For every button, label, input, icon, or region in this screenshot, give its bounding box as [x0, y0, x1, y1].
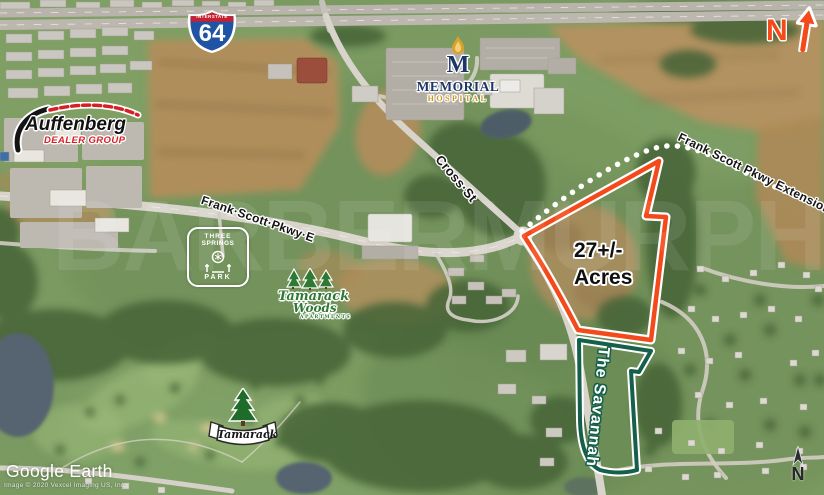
- memorial-name: MEMORIAL: [398, 79, 518, 95]
- memorial-hospital-logo: M MEMORIAL HOSPITAL: [398, 36, 518, 108]
- memorial-subtitle: HOSPITAL: [398, 94, 518, 103]
- tamarack-woods-line2: Woods: [293, 301, 337, 315]
- compass-needle-icon: [791, 446, 805, 466]
- interstate-number: 64: [187, 20, 237, 48]
- three-springs-park-logo: THREE SPRINGS PARK: [187, 227, 249, 287]
- auffenberg-logo: Auffenberg DEALER GROUP: [8, 102, 150, 158]
- brokerage-watermark: BARBERMURPHY: [52, 182, 792, 290]
- google-earth-compass-label: N: [786, 464, 810, 485]
- tamarack-golf-logo: Tamarack: [201, 388, 285, 448]
- acreage-line1: 27+/-: [574, 237, 632, 264]
- north-arrow: N: [764, 6, 820, 54]
- google-earth-compass: N: [786, 446, 810, 492]
- three-trees-icon: [284, 268, 336, 290]
- north-arrow-icon: [792, 6, 820, 52]
- acreage-line2: Acres: [574, 264, 632, 291]
- tamarack-golf-name: Tamarack: [217, 428, 273, 441]
- interstate-64-shield: INTERSTATE 64: [187, 9, 237, 54]
- parcel-acreage-label: 27+/- Acres: [574, 237, 632, 291]
- google-earth-attribution: Google Earth: [6, 461, 113, 482]
- aerial-map: BARBERMURPHY Frank·Scott·Pkwy·E Cross·St…: [0, 0, 824, 495]
- fountain-icon: [203, 248, 233, 273]
- memorial-initial: M: [398, 52, 518, 79]
- north-arrow-label: N: [766, 14, 788, 48]
- auffenberg-name: Auffenberg: [25, 114, 126, 136]
- imagery-copyright: Image © 2020 Vexcel Imaging US, Inc.: [4, 482, 127, 489]
- tamarack-woods-subtitle: APARTMENTS: [300, 315, 351, 320]
- three-springs-line1: THREE: [189, 233, 247, 240]
- auffenberg-subtitle: DEALER GROUP: [44, 135, 125, 146]
- three-springs-line3: PARK: [189, 274, 247, 281]
- three-springs-line2: SPRINGS: [189, 240, 247, 247]
- interstate-banner-text: INTERSTATE: [187, 14, 237, 19]
- tamarack-woods-logo: Tamarack Woods APARTMENTS: [276, 268, 344, 324]
